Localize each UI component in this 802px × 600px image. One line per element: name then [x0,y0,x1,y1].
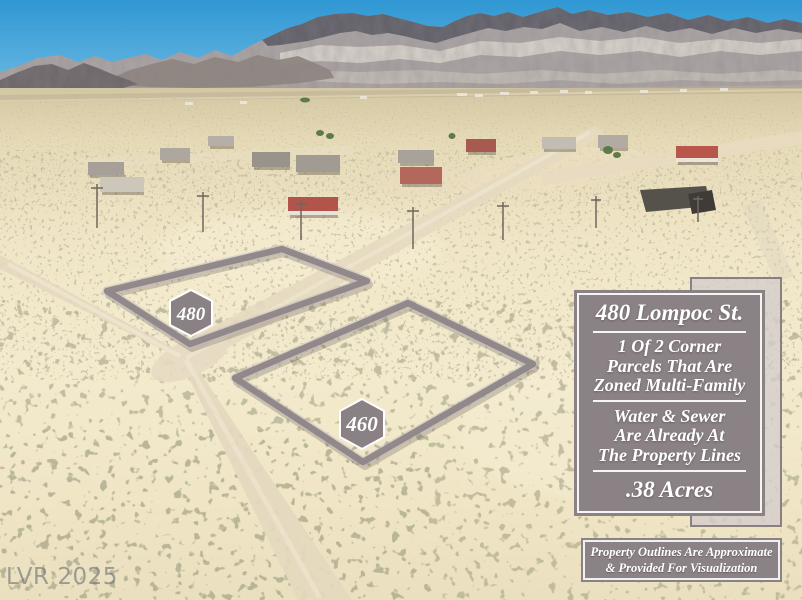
disclaimer-line-1: Property Outlines Are Approximate [585,544,778,560]
parcel-badge-480: 480 [170,290,212,336]
utilities-line-3: The Property Lines [583,446,756,466]
panel-divider [593,400,745,402]
panel-divider [593,331,745,333]
disclaimer-note: Property Outlines Are Approximate & Prov… [583,540,780,580]
parcel-badge-460: 460 [340,399,384,449]
parcel-badge-480-label: 480 [176,304,206,325]
aerial-listing-photo: 480 460 480 Lompoc St. 1 Of 2 Corner Par… [0,0,802,600]
utilities-note: Water & Sewer Are Already At The Propert… [583,407,756,466]
zoning-line-2: Parcels That Are [583,357,756,377]
photographer-watermark: LVR 2025 [6,564,118,590]
zoning-line-1: 1 Of 2 Corner [583,337,756,357]
utilities-line-1: Water & Sewer [583,407,756,427]
listing-address: 480 Lompoc St. [583,300,756,326]
parcel-badge-460-label: 460 [345,412,378,436]
disclaimer-line-2: & Provided For Visualization [585,560,778,576]
zoning-line-3: Zoned Multi-Family [583,376,756,396]
acreage: .38 Acres [583,476,756,504]
info-panel: 480 Lompoc St. 1 Of 2 Corner Parcels Tha… [577,293,762,513]
zoning-note: 1 Of 2 Corner Parcels That Are Zoned Mul… [583,337,756,396]
utilities-line-2: Are Already At [583,426,756,446]
panel-divider [593,470,745,472]
